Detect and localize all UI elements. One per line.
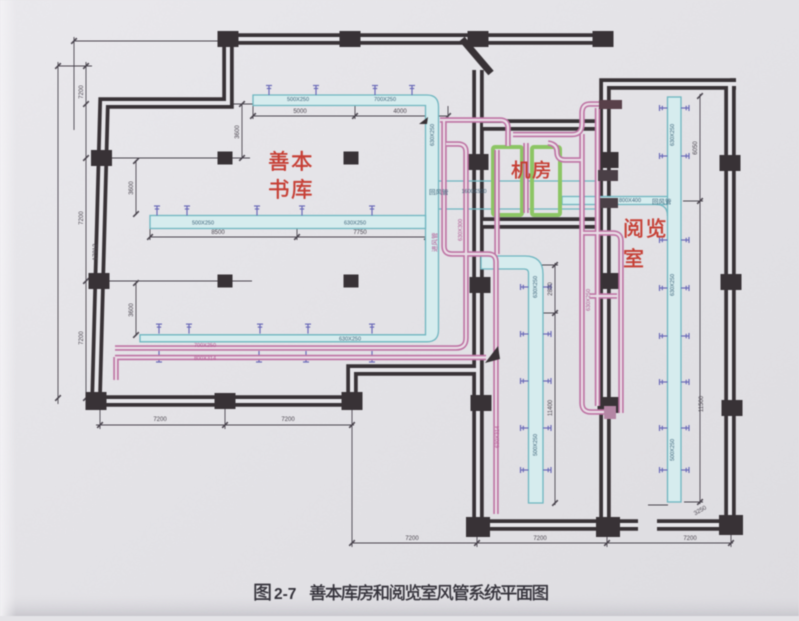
svg-text:11500: 11500 [699,395,705,412]
svg-text:630X250: 630X250 [430,124,436,146]
svg-text:7200: 7200 [153,417,167,423]
svg-text:500X250: 500X250 [533,434,539,456]
svg-text:7200: 7200 [405,536,419,542]
svg-text:3600: 3600 [129,303,135,317]
svg-text:800X400: 800X400 [619,198,641,204]
svg-text:630X314: 630X314 [495,426,501,448]
svg-text:4000: 4000 [393,109,407,115]
svg-text:7200: 7200 [79,211,85,225]
svg-text:630X250: 630X250 [344,221,366,227]
svg-text:3600: 3600 [235,125,241,139]
svg-text:630X250: 630X250 [670,274,676,296]
svg-text:2800: 2800 [548,282,554,296]
svg-text:630X250: 630X250 [670,124,676,146]
svg-text:800X314: 800X314 [194,356,216,362]
svg-text:3600: 3600 [129,181,135,195]
svg-text:630X250: 630X250 [586,289,592,311]
svg-text:2-7: 2-7 [274,586,296,603]
svg-text:17812: 17812 [93,243,99,260]
svg-text:5000: 5000 [293,109,307,115]
svg-text:8500: 8500 [211,230,225,236]
svg-text:7200: 7200 [281,417,295,423]
svg-text:7200: 7200 [79,331,85,345]
svg-text:500X250: 500X250 [287,97,309,103]
svg-text:500X250: 500X250 [192,221,214,227]
svg-text:6050: 6050 [693,141,699,155]
svg-text:630X250: 630X250 [533,276,539,298]
svg-text:7200: 7200 [79,85,85,99]
svg-text:700X250: 700X250 [374,97,396,103]
svg-text:700X250: 700X250 [194,343,216,349]
svg-text:7750: 7750 [353,230,367,236]
svg-text:630X300: 630X300 [458,219,464,241]
svg-text:1600X500: 1600X500 [461,189,486,195]
svg-text:7200: 7200 [533,536,547,542]
svg-text:11400: 11400 [548,399,554,416]
svg-text:500X250: 500X250 [670,439,676,461]
svg-text:630X250: 630X250 [339,337,361,343]
svg-text:7200: 7200 [683,536,697,542]
